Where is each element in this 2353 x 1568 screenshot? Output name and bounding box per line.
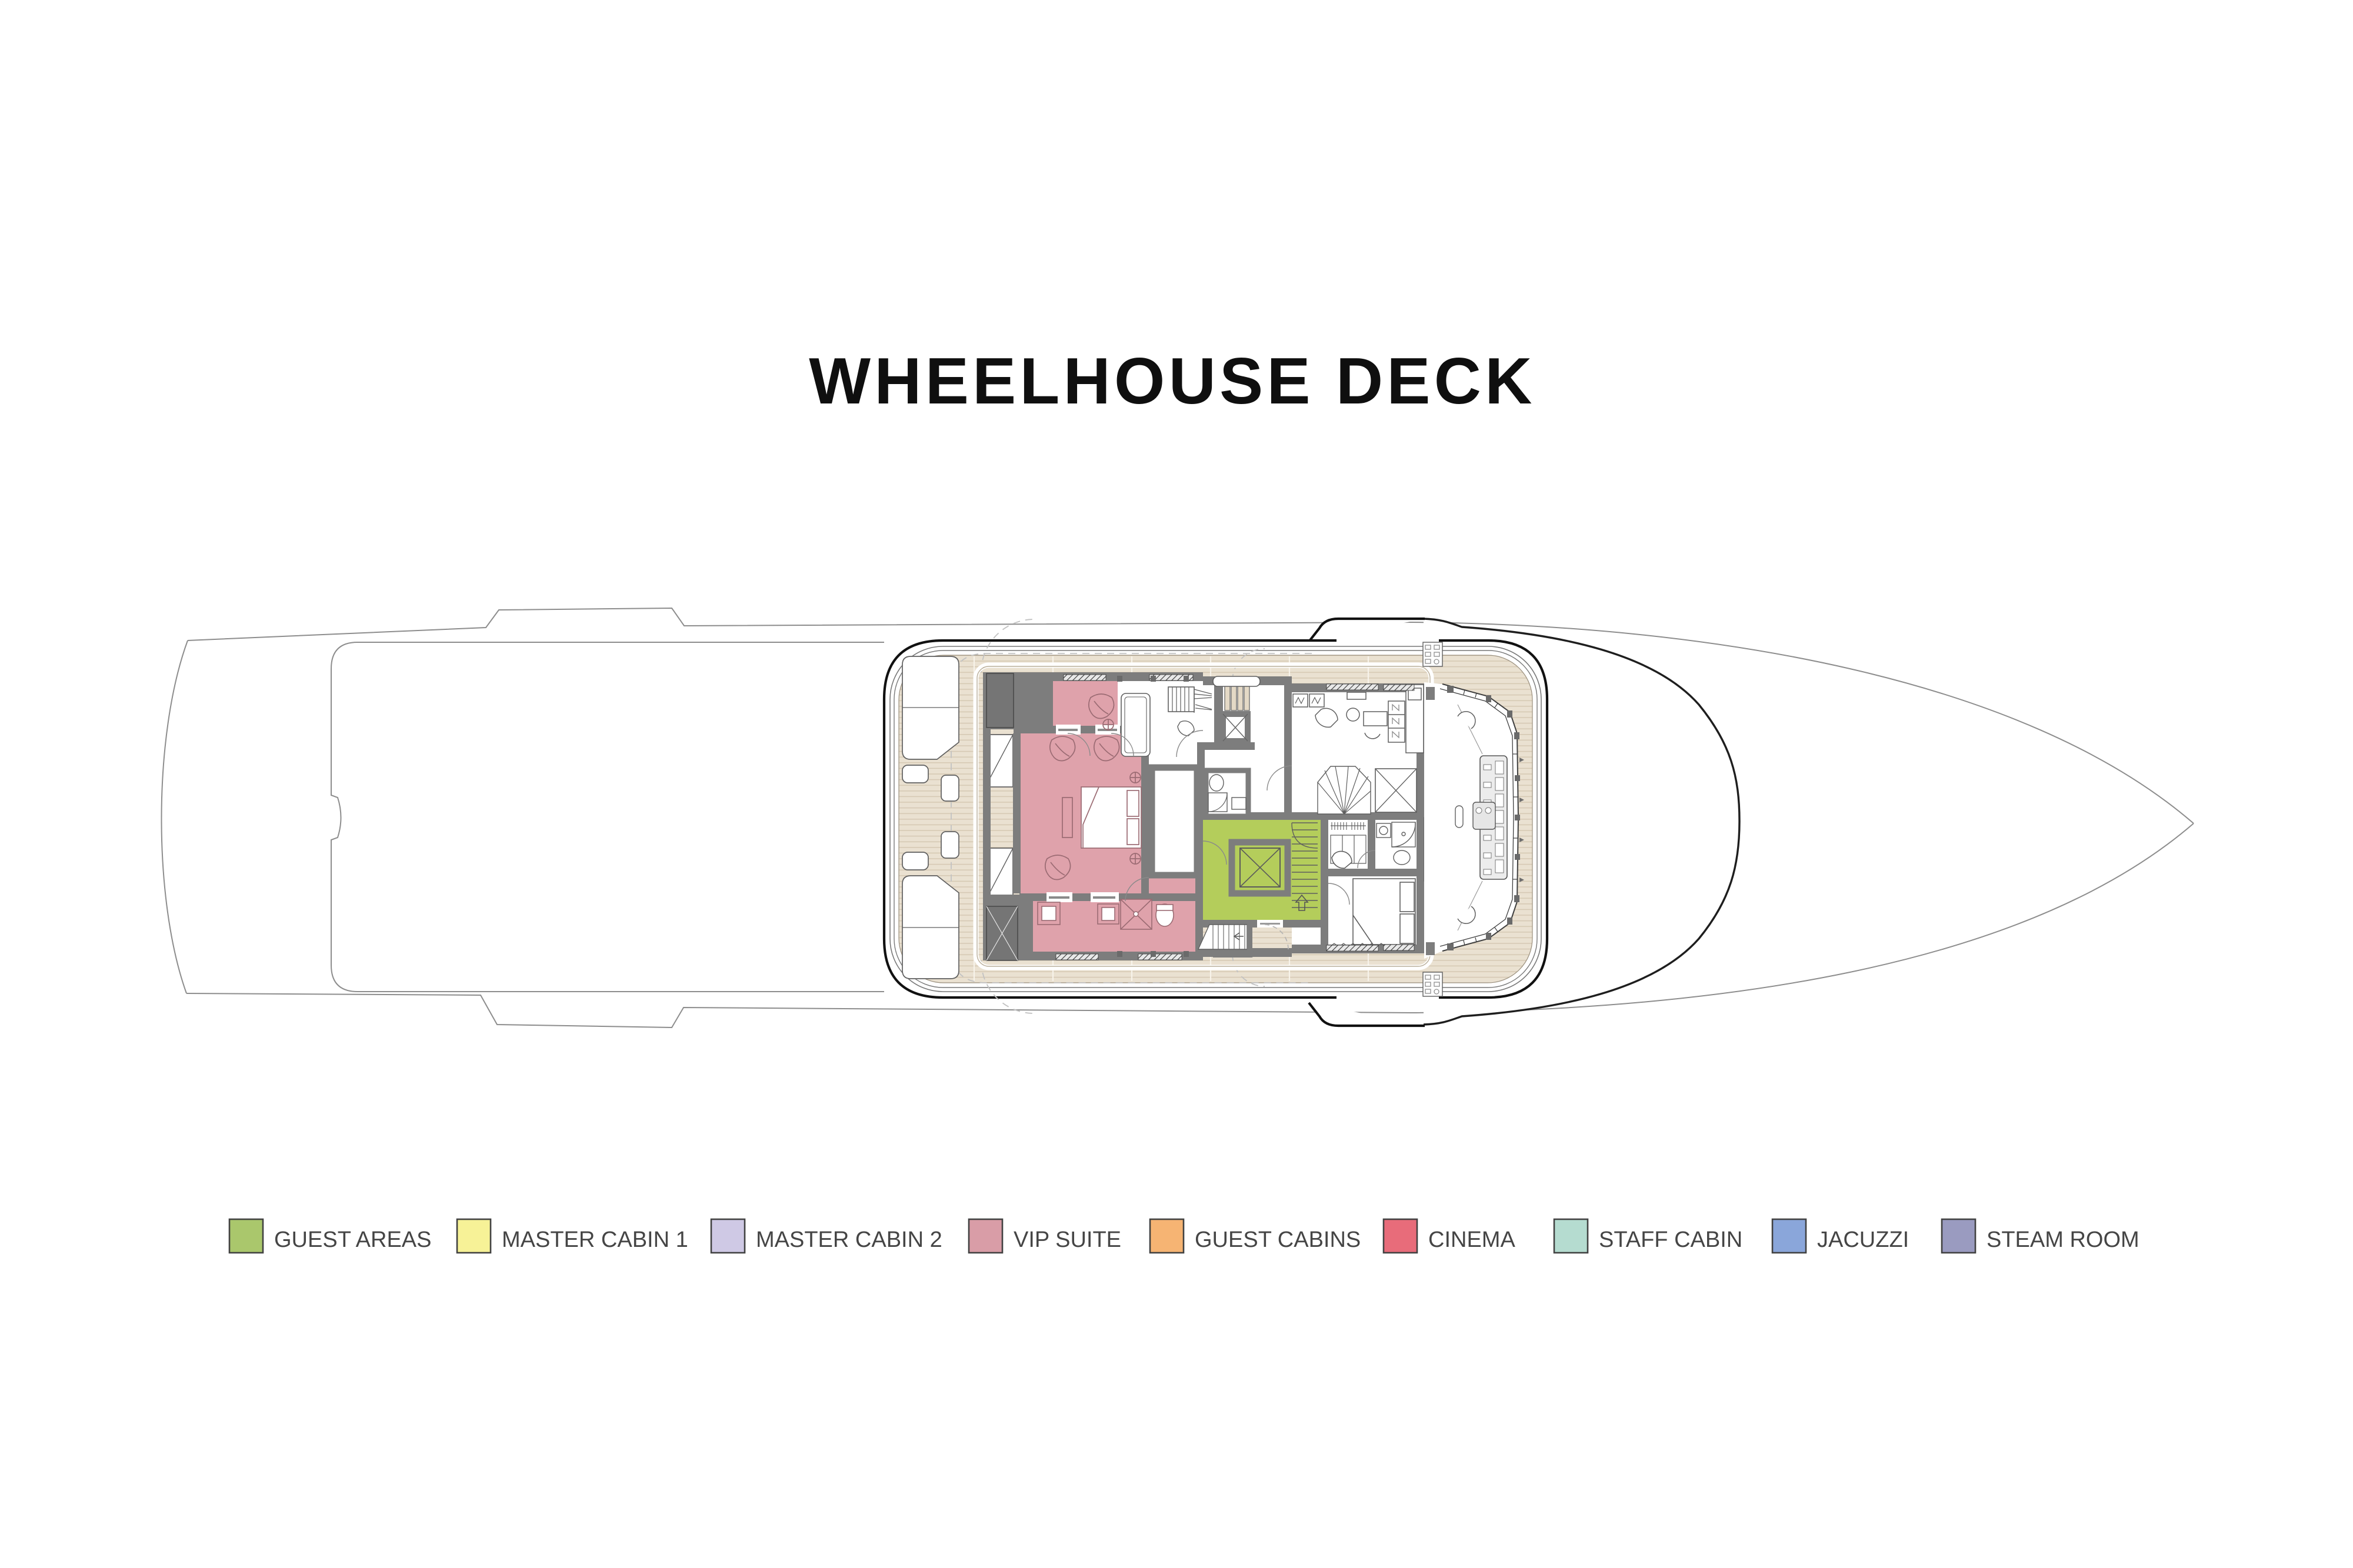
svg-text:GUEST AREAS: GUEST AREAS xyxy=(274,1227,432,1252)
svg-text:STEAM ROOM: STEAM ROOM xyxy=(1987,1227,2139,1252)
svg-text:JACUZZI: JACUZZI xyxy=(1817,1227,1909,1252)
svg-text:MASTER CABIN 2: MASTER CABIN 2 xyxy=(756,1227,942,1252)
svg-text:VIP SUITE: VIP SUITE xyxy=(1014,1227,1121,1252)
svg-text:WHEELHOUSE DECK: WHEELHOUSE DECK xyxy=(809,345,1535,418)
svg-text:GUEST CABINS: GUEST CABINS xyxy=(1195,1227,1361,1252)
svg-text:MASTER CABIN 1: MASTER CABIN 1 xyxy=(502,1227,688,1252)
svg-text:CINEMA: CINEMA xyxy=(1428,1227,1515,1252)
svg-text:STAFF CABIN: STAFF CABIN xyxy=(1599,1227,1742,1252)
